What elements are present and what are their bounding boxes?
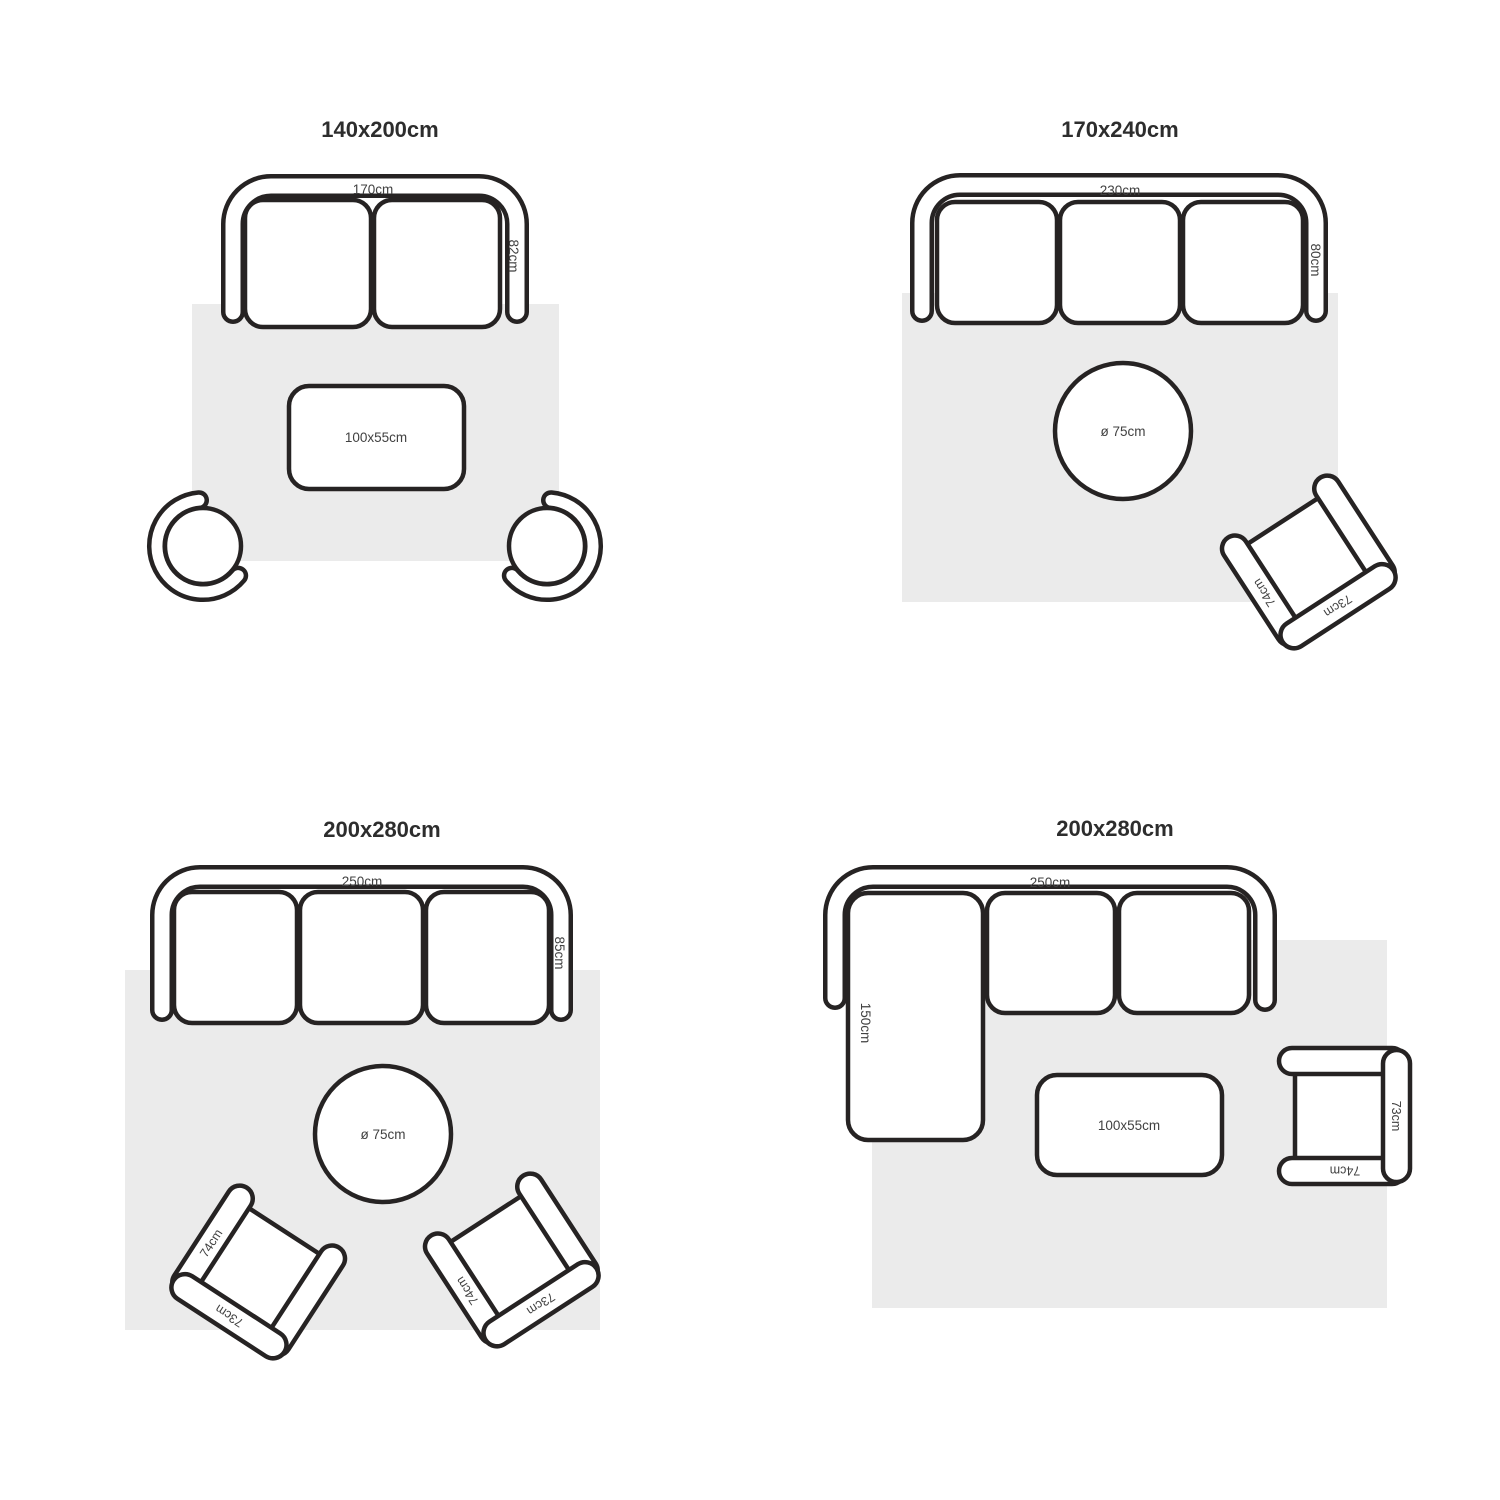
sofa-width-dimension-label: 230cm — [1100, 183, 1141, 198]
sofa-cushion — [245, 200, 371, 327]
sofa-cushion — [426, 892, 549, 1023]
layout-200x280-sectional: 200x280cm 100x55cm 250cm 150cm — [835, 816, 1410, 1308]
layout-title: 200x280cm — [1056, 816, 1173, 841]
diagram-svg: 74cm 73cm 140x200cm 100x55cm 170cm 82cm … — [0, 0, 1500, 1500]
sofa-cushion — [1060, 202, 1180, 323]
sofa-depth-dimension-label: 85cm — [552, 936, 567, 969]
layout-140x200: 140x200cm 100x55cm 170cm 82cm — [157, 117, 593, 592]
layout-170x240: 170x240cm ø 75cm 230cm 80cm — [902, 117, 1402, 655]
layout-200x280-sofa: 200x280cm ø 75cm 250cm 85cm — [125, 817, 605, 1365]
sofa-cushion — [937, 202, 1057, 323]
sofa-width-dimension-label: 250cm — [342, 874, 383, 889]
coffee-table-dimension-label: 100x55cm — [1098, 1118, 1160, 1133]
layout-title: 140x200cm — [321, 117, 438, 142]
round-table-dimension-label: ø 75cm — [360, 1127, 405, 1142]
sofa-depth-dimension-label: 82cm — [506, 239, 521, 272]
sofa-width-dimension-label: 250cm — [1030, 875, 1071, 890]
round-table-dimension-label: ø 75cm — [1100, 424, 1145, 439]
chaise-depth-dimension-label: 150cm — [858, 1003, 873, 1044]
layout-title: 170x240cm — [1061, 117, 1178, 142]
sofa-cushion — [1119, 893, 1249, 1013]
armchair — [1279, 1048, 1410, 1184]
sofa-cushion — [1183, 202, 1303, 323]
rug-size-guide-diagram: 74cm 73cm 140x200cm 100x55cm 170cm 82cm … — [0, 0, 1500, 1500]
layout-title: 200x280cm — [323, 817, 440, 842]
coffee-table-dimension-label: 100x55cm — [345, 430, 407, 445]
sofa-depth-dimension-label: 80cm — [1308, 243, 1323, 276]
sofa-cushion — [174, 892, 297, 1023]
sofa-cushion — [987, 893, 1115, 1013]
sofa-cushion — [300, 892, 423, 1023]
sofa-cushion — [374, 200, 500, 327]
sofa-width-dimension-label: 170cm — [353, 182, 394, 197]
